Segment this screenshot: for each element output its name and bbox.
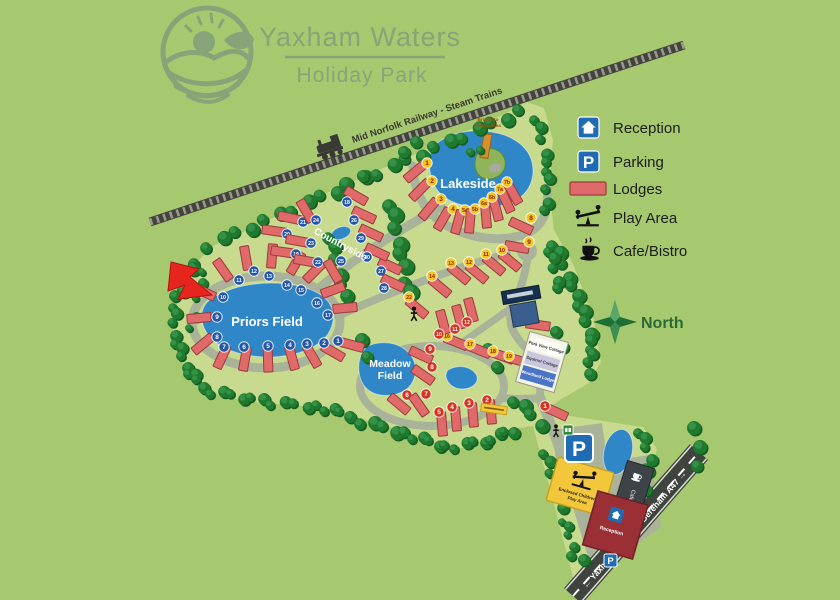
lodge-number: 9	[428, 346, 432, 353]
lodge-number: 14	[284, 283, 290, 289]
lodge-number: 1	[336, 338, 340, 345]
lodge-number: 13	[448, 261, 454, 267]
lodge-number: 12	[251, 269, 257, 275]
holiday-park-map: ← Yaxham B1135 Dereham A47 → Mid Norfolk…	[0, 0, 840, 600]
compass-label: North	[641, 315, 684, 332]
lodge-number: 17	[325, 313, 331, 319]
lodge-number: 5	[266, 343, 270, 350]
lodge-number: 7	[424, 391, 428, 398]
lodge-number: 6b	[489, 195, 495, 201]
bridge-label-line2: Picnic Area	[475, 123, 501, 129]
lodge-number: 24	[313, 218, 319, 224]
lodge-number: 10	[436, 332, 442, 338]
lodge-number: 10	[220, 295, 226, 301]
lodge-number: 26	[351, 218, 357, 224]
legend-item-reception: Reception	[578, 117, 681, 138]
legend-label-parking: Parking	[613, 154, 664, 171]
lodge-priors-5: 5	[263, 341, 273, 372]
label-meadow-line1: Meadow	[369, 358, 411, 370]
legend-label-play-area: Play Area	[613, 210, 678, 227]
lodge-number: 19	[506, 354, 512, 360]
lodge-number: 27	[378, 269, 384, 275]
lodge-number: 11	[452, 327, 458, 333]
legend-item-lodges: Lodges	[570, 181, 662, 198]
parking-icon: P	[583, 153, 594, 172]
lodge-number: 1	[543, 403, 547, 410]
lodge-number: 5b	[472, 207, 478, 213]
lodge-number: 16	[314, 301, 320, 307]
lodge-number: 18	[344, 200, 350, 206]
lodge-number: 1	[425, 160, 429, 167]
lodge-number: 9	[215, 314, 219, 321]
lodge-rect	[333, 302, 358, 313]
lodge-number: 23	[308, 241, 314, 247]
label-meadow-line2: Field	[378, 370, 403, 382]
lodge-number: 2	[430, 178, 434, 185]
recycling-sign	[563, 425, 573, 435]
lodge-number: 4	[288, 342, 292, 349]
lodge-swatch	[570, 182, 606, 195]
legend-label-reception: Reception	[613, 120, 681, 137]
main-parking-sign: P	[565, 434, 593, 462]
lodge-number: 4	[450, 404, 454, 411]
lodge-number: 6	[242, 344, 246, 351]
lodge-number: 5	[437, 409, 441, 416]
lodge-number: 14	[429, 274, 435, 280]
legend-item-parking: P Parking	[578, 151, 664, 172]
lodge-number: 16	[444, 334, 450, 340]
lodge-number: 17	[467, 342, 473, 348]
lodge-number: 22	[406, 295, 412, 301]
lodge-number: 12	[466, 260, 472, 266]
lodge-number: 12	[464, 320, 470, 326]
lodge-number: 18	[490, 349, 496, 355]
lodge-number: 8	[430, 364, 434, 371]
lodge-number: 8	[215, 334, 219, 341]
label-lakeside: Lakeside	[440, 176, 496, 191]
lodge-number: 29	[358, 236, 364, 242]
title-line1: Yaxham Waters	[259, 22, 461, 52]
lodge-number: 2	[322, 340, 326, 347]
title-line2: Holiday Park	[296, 64, 427, 87]
legend-label-lodges: Lodges	[613, 181, 662, 198]
label-priors-field: Priors Field	[231, 314, 303, 329]
lodge-number: 9	[527, 239, 531, 246]
lodge-number: 11	[483, 252, 489, 258]
lodge-number: 3	[305, 341, 309, 348]
lodge-number: 15	[298, 288, 304, 294]
lodge-rect	[187, 312, 212, 323]
lodge-number: 13	[266, 274, 272, 280]
lodge-number: 3	[439, 196, 443, 203]
lodge-number: 25	[338, 259, 344, 265]
lodge-number: 10	[499, 248, 505, 254]
lodge-number: 7b	[504, 180, 510, 186]
lodge-number: 8	[529, 215, 533, 222]
lodge-number: 7	[222, 344, 226, 351]
lodge-number: 21	[300, 220, 306, 226]
lodge-number: 3	[467, 400, 471, 407]
lodge-number: 2	[485, 397, 489, 404]
lodge-number: 28	[381, 286, 387, 292]
lodge-number: 7a	[497, 187, 503, 193]
lodge-number: 22	[315, 260, 321, 266]
lodge-number: 4	[451, 206, 455, 213]
map-svg: ← Yaxham B1135 Dereham A47 → Mid Norfolk…	[0, 0, 840, 600]
lodge-number: 11	[236, 278, 242, 284]
bridge-label-line1: Bridge to	[477, 117, 498, 123]
legend-label-cafe: Cafe/Bistro	[613, 243, 687, 260]
lodge-number: 6a	[481, 201, 487, 207]
main-parking-letter: P	[572, 438, 586, 461]
small-parking-sign: P	[604, 554, 617, 567]
small-parking-letter: P	[607, 556, 614, 567]
